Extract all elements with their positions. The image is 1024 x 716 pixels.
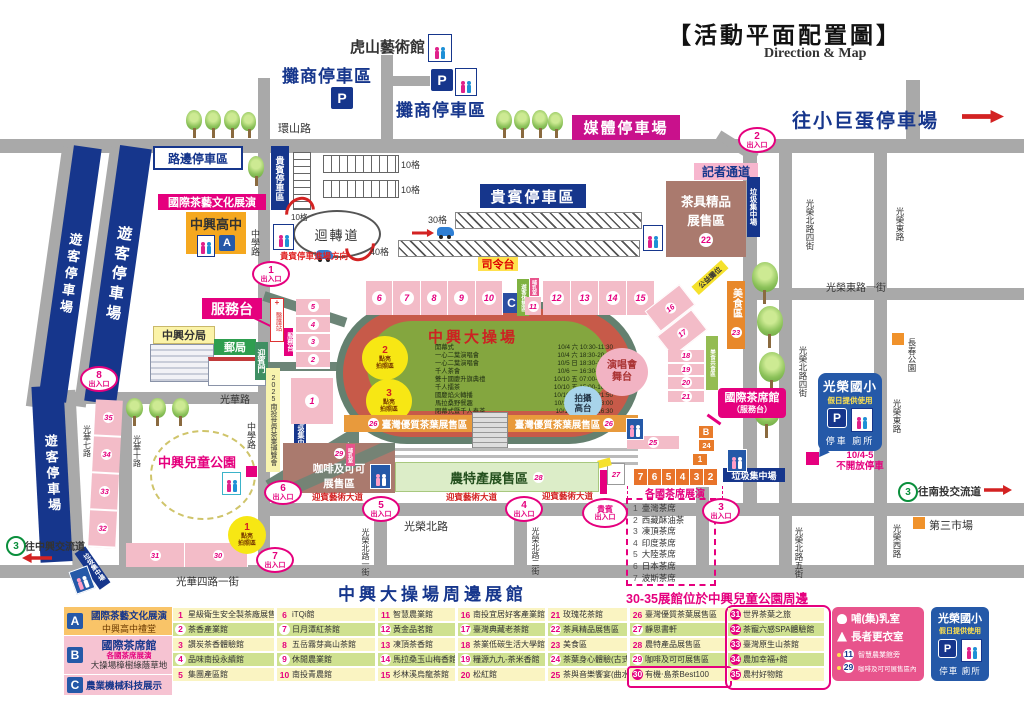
tea-seat-row: 1臺灣茶席 — [633, 503, 709, 515]
legend-item: 10南投青農館 — [277, 668, 375, 681]
legend-b-badge: B — [67, 647, 83, 663]
legend-item: 7日月潭紅茶館 — [277, 623, 375, 636]
booth-cell: 13 — [571, 281, 599, 315]
booth-cell: 7 — [393, 281, 420, 315]
booth-cell: 14 — [599, 281, 627, 315]
booth-cell: 12 — [543, 281, 571, 315]
legend-a-badge: A — [67, 613, 83, 629]
police-label: 中興分局 — [153, 326, 215, 344]
avenue-label: 迎賓藝術大道 — [446, 491, 497, 503]
booth-cell: 4 — [676, 469, 690, 485]
parking-hatch — [398, 240, 640, 257]
legend-item: 9休閒農業館 — [277, 653, 375, 666]
tree-icon — [757, 306, 783, 348]
booth-col-35-32: 35343332 — [88, 399, 123, 548]
vip-parking-box: 貴賓停車區 — [480, 184, 586, 208]
legend-item: 15杉林溪烏龍茶館 — [378, 668, 455, 681]
vip-parking-tag: 貴賓停車區 — [271, 146, 289, 210]
gn5-road-label: 光榮北路五街 — [793, 516, 805, 588]
tree-icon — [548, 112, 563, 138]
info-box: 哺(集)乳室 長者更衣室 11 智慧農業館旁 29 咖啡及可可展售區內 — [832, 607, 924, 681]
legend-item: 24茶葉身心體驗(古式奶茶) — [548, 653, 627, 666]
legend-col-3: 11智慧農業館12黃金品茗館13凍頂茶香館14馬拉桑玉山梅香館15杉林溪烏龍茶館 — [378, 608, 455, 683]
booth-cell: 2 — [296, 352, 330, 370]
agri-products-strip: 農特產展售區28 — [395, 462, 599, 492]
tea-seat-row: 3凍頂茶席 — [633, 526, 709, 538]
booth-cell: 5 — [662, 469, 676, 485]
tree-icon — [149, 398, 166, 426]
booth-cell: 33 — [90, 473, 119, 511]
tea-seat-row: 6日本茶席 — [633, 561, 709, 573]
booth-cell: 2 — [704, 469, 718, 485]
legend-item: 31世界茶葉之旅 — [728, 608, 824, 621]
booth-cell: 9 — [448, 281, 475, 315]
legend-item: 14馬拉桑玉山梅香館 — [378, 653, 455, 666]
market-label: 第三市場 — [929, 517, 973, 533]
tea-seat-row: 7波斯茶席 — [633, 573, 709, 585]
gate-3-badge: 3出入口 — [702, 498, 740, 524]
toilet-icon — [961, 639, 982, 662]
vendor-parking-1-label: 攤商停車區 — [282, 62, 372, 87]
booth-cell: 4 — [296, 317, 330, 335]
guangrong-school-callout: 光榮國小 假日提供使用 P 停車 廁所 — [818, 373, 882, 451]
police-building — [150, 344, 214, 382]
road-ge1 — [750, 288, 1024, 300]
small-tag — [600, 470, 607, 494]
legend-item: 28農特產品展售區 — [630, 638, 726, 651]
page-subtitle: Direction & Map — [764, 46, 866, 62]
nursing-tag: 哺乳室 — [530, 278, 539, 296]
legend-item: 3讚炭茶香體驗館 — [173, 638, 274, 651]
gate-5-badge: 5出入口 — [362, 496, 400, 522]
gate-8-badge: 8出入口 — [80, 366, 118, 392]
legend-b-block: B 國際茶席館 各國茶席展演 大操場樟樹綠蔭草地 — [64, 636, 172, 674]
toilet-icon — [370, 464, 391, 489]
to-nantou-arrow-icon — [984, 485, 1012, 495]
gn1-road-label: 光榮北路一街 — [360, 521, 371, 583]
children-park-label: 中興兒童公園 — [158, 452, 236, 471]
road-hushan — [381, 55, 393, 141]
booth-cell: 31 — [126, 543, 185, 567]
legend-item: 6iTQi館 — [277, 608, 375, 621]
command-stage-label: 司令台 — [478, 257, 518, 271]
booth-1: 1 — [291, 378, 333, 424]
booth-cell: 7 — [634, 469, 648, 485]
parking-icon: P — [330, 86, 354, 110]
legend-c-badge: C — [67, 677, 83, 693]
booth-cell: 18 — [668, 350, 704, 364]
car-icon — [437, 227, 454, 236]
changchun-park-icon — [892, 333, 904, 345]
vendor-parking-2-label: 攤商停車區 — [396, 96, 486, 121]
booth-row-12-15: 12131415 — [543, 281, 655, 315]
legend-item: 2茶香產業館 — [173, 623, 274, 636]
concert-stage: 演唱會舞台 — [596, 348, 648, 396]
parking-grid — [323, 155, 399, 173]
legend-item: 5集團產區館 — [173, 668, 274, 681]
food-area-strip: 美食區 23 — [727, 281, 745, 349]
legend-col-4: 16南投宜居好客產業館17臺灣典藏老茶館18茶業低碳生活大學館19糧源九九-茶米… — [458, 608, 545, 683]
booth-b: B — [699, 426, 713, 438]
to-nantou-label: 往南投交流道 — [918, 484, 981, 499]
legend-item: 27靜思書軒 — [630, 623, 726, 636]
tree-icon — [514, 110, 530, 138]
legend-item: 19糧源九九-茶米香館 — [458, 653, 545, 666]
parking-icon: P — [430, 68, 454, 92]
legend-col-5: 21玫瑰花茶館22茶具精品展售區23美食區24茶葉身心體驗(古式奶茶)25茶與音… — [548, 608, 627, 683]
parking-icon: P — [938, 639, 957, 658]
schedule-row: 一心二葉演唱會10/5 日 18:30-20:00 — [435, 360, 613, 368]
parking-hatch — [455, 212, 642, 229]
road-gn2 — [514, 516, 527, 568]
changchun-park-label: 長春公園 — [906, 322, 918, 388]
teaware-zone: 茶具精品 展售區 22 — [666, 181, 746, 257]
gate-4-badge: 4出入口 — [505, 496, 543, 522]
elder-icon — [837, 632, 847, 642]
legend-item: 21玫瑰花茶館 — [548, 608, 627, 621]
grid-count: 10格 — [401, 158, 420, 171]
zhongxue-road-label: 中學路 — [250, 220, 261, 264]
toilet-icon — [428, 34, 452, 62]
grnorth-road-label: 光榮北路 — [404, 518, 448, 534]
legend-item: 25茶與音樂饗宴(曲水流觴) — [548, 668, 627, 681]
toilet-icon — [197, 235, 215, 257]
legend-30-border — [627, 666, 732, 688]
huanshan-road-label: 環山路 — [278, 120, 311, 136]
gw-road-label: 光榮西路 — [891, 518, 903, 564]
trash-area-tag: 垃圾集中場 — [747, 177, 760, 237]
toilet-icon — [273, 224, 294, 250]
avenue-label: 迎賓藝術大道 — [312, 491, 363, 503]
booth-cell: 20 — [668, 377, 704, 391]
page-title: 【活動平面配置圖】 — [668, 16, 902, 50]
gate-1-badge: 1出入口 — [252, 261, 290, 287]
legend-item: 13凍頂茶香館 — [378, 638, 455, 651]
toilet-icon — [851, 408, 873, 432]
service-small-tag: 服務台 — [284, 328, 293, 356]
tree-icon — [205, 110, 221, 138]
school-legend-box: 光榮國小 假日提供使用 P 停車 廁所 — [931, 607, 989, 681]
guanghua-road-label: 光華路 — [220, 391, 250, 406]
hall-a-badge: A — [219, 235, 235, 251]
legend-item: 23美食區 — [548, 638, 627, 651]
tree-icon — [224, 110, 240, 138]
guanghua7-road-label: 光華七路 — [82, 416, 92, 466]
baby-icon — [837, 614, 847, 624]
legend-item: 16南投宜居好客產業館 — [458, 608, 545, 621]
intl-tea-culture-label: 國際茶藝文化展演 — [158, 194, 266, 210]
tea-seat-row: 5大陸茶席 — [633, 549, 709, 561]
road-zhongxue — [258, 78, 270, 576]
guanghua10-road-label: 光華十路 — [132, 424, 142, 478]
grid-count: 40格 — [370, 245, 389, 258]
highway-3-shield: 3 — [898, 482, 918, 502]
zhongxing-high-school: 中興高中 A — [186, 212, 246, 254]
roadside-parking-label: 路邊停車區 — [153, 146, 243, 170]
booth-cell: 35 — [94, 399, 123, 437]
ge-road-label: 光榮東路 — [891, 388, 903, 444]
tree-icon — [126, 398, 143, 426]
booth-24: 24 — [699, 440, 714, 451]
tea-seat-row: 2西藏酥油茶 — [633, 515, 709, 527]
post-office-label: 郵局 — [214, 339, 256, 355]
booth-cell: 32 — [88, 510, 117, 548]
legend-item: 11智慧農業館 — [378, 608, 455, 621]
toilet-icon — [643, 225, 663, 251]
tree-icon — [496, 110, 512, 138]
school-name: 中興高中 — [186, 214, 246, 233]
schedule-row: 開幕式10/4 六 10:30-11:30 — [435, 344, 613, 352]
grid-count: 30格 — [428, 213, 447, 226]
legend-item: 35農村好物館 — [728, 668, 824, 681]
photo-spot-2: 2點亮拍照區 — [362, 336, 408, 380]
booth-cell: 34 — [92, 436, 121, 474]
media-parking-label: 媒體停車場 — [572, 115, 680, 140]
avenue-label: 迎賓藝術大道 — [542, 490, 593, 502]
hushan-gallery-label: 虎山藝術館 — [350, 36, 425, 57]
booth-11: 11 — [525, 297, 541, 315]
legend-item: 34農加幸福+館 — [728, 653, 824, 666]
vip-direction-label: 貴賓停車進場方向 — [280, 250, 348, 262]
ge1-road-label: 光榮東路一街 — [826, 279, 886, 294]
legend-item: 18茶業低碳生活大學館 — [458, 638, 545, 651]
schedule-row: 一心二葉演唱會10/4 六 18:30-20:00 — [435, 352, 613, 360]
gn4-road-label: 光榮北路四街 — [797, 332, 809, 410]
schedule-row: 雙十國慶升旗典禮10/10 五 07:00-08:00 — [435, 376, 613, 384]
schedule-row: 千人茶會10/6 一 16:30-17:30 — [435, 368, 613, 376]
booth-col-5-2: 5432 — [296, 299, 330, 369]
tea-seat-row: 4印度茶席 — [633, 538, 709, 550]
to-dome-label: 往小巨蛋停車場 — [792, 106, 939, 133]
legend-col-1: 1星級衛生安全製茶廠展售館2茶香產業館3讚炭茶香體驗館4品味南投永續館5集團產區… — [173, 608, 274, 683]
charity-booth-tag: 公益攤位 — [691, 260, 728, 295]
around-title: 中興大操場周邊展館 — [338, 580, 527, 605]
event-map: 【活動平面配置圖】 Direction & Map 往小巨蛋停車場 虎山藝術館 … — [0, 0, 1024, 716]
legend-c-block: C 農業機械科技展示 — [64, 675, 172, 695]
legend-col-2: 6iTQi館7日月潭紅茶館8五岳霧芽高山茶館9休閒農業館10南投青農館 — [277, 608, 375, 683]
tree-icon — [248, 156, 264, 186]
gate-7-badge: 7出入口 — [256, 547, 294, 573]
nursing-tag: 哺乳室 — [346, 444, 355, 466]
legend-col-7: 31世界茶葉之旅32茶寵六感SPA體驗館33臺灣原生山茶館34農加幸福+館35農… — [728, 608, 824, 683]
to-dome-arrow-icon — [962, 110, 1004, 123]
direction-arrow-icon — [412, 229, 434, 237]
legend-item: 8五岳霧芽高山茶館 — [277, 638, 375, 651]
food-share-strip: 美食共食區 — [706, 336, 718, 390]
toilet-icon — [222, 472, 241, 495]
booth-cell: 5 — [296, 299, 330, 317]
booth-col-18-21: 18192021 — [668, 350, 704, 404]
gate-2-badge: 2出入口 — [738, 127, 776, 153]
legend-item: 1星級衛生安全製茶廠展售館 — [173, 608, 274, 621]
ge-road-label: 光榮東路 — [894, 196, 906, 252]
tree-icon — [752, 262, 778, 304]
expo-strip: 2025南投世界茶業博覽會 — [266, 368, 280, 472]
to-zhongxing-label: 往中興交流道 — [25, 538, 85, 553]
tree-icon — [241, 112, 256, 138]
service-desk-label: 服務台 — [202, 298, 262, 319]
legend-item: 29咖啡及可可展售區 — [630, 653, 726, 666]
road-gn1 — [374, 516, 387, 568]
road-connector — [392, 76, 434, 86]
toilet-icon — [626, 418, 644, 440]
booth-row-6-10: 678910 — [366, 281, 503, 315]
parking-grid — [323, 180, 399, 198]
tree-icon — [186, 110, 202, 138]
legend-item: 32茶寵六感SPA體驗館 — [728, 623, 824, 636]
legend-item: 17臺灣典藏老茶館 — [458, 623, 545, 636]
booth-cell: 6 — [648, 469, 662, 485]
booth-cell: 21 — [668, 391, 704, 405]
booth-cell: 10 — [476, 281, 503, 315]
tree-icon — [172, 398, 189, 426]
booth-27: 27 — [607, 463, 625, 485]
booth-row-7-2: 765432 — [634, 469, 718, 485]
red-cross-icon: + — [271, 299, 283, 307]
tree-icon — [532, 110, 548, 138]
legend-item: 20松紅館 — [458, 668, 545, 681]
photo-spot-1: 1點亮拍照區 — [228, 516, 266, 554]
vip-gate-badge: 貴賓出入口 — [582, 498, 628, 528]
parking-icon: P — [827, 408, 847, 428]
gate-6-badge: 6出入口 — [264, 480, 302, 505]
stage-marker — [246, 466, 257, 477]
legend-item: 4品味南投永續館 — [173, 653, 274, 666]
medic-station: + 醫護站 — [270, 298, 284, 342]
legend-a-block: A 國際茶藝文化展演 中興高中禮堂 — [64, 607, 172, 635]
no-parking-marker — [806, 452, 819, 465]
legend-item: 12黃金品茗館 — [378, 623, 455, 636]
legend-item: 33臺灣原生山茶館 — [728, 638, 824, 651]
no-parking-note: 10/4-5不開放停車 — [824, 450, 896, 472]
gn2-road-label: 光榮北路二街 — [530, 520, 541, 582]
guanghua41-road-label: 光華四路一街 — [176, 574, 239, 589]
toilet-icon — [455, 68, 477, 96]
toilet-icon — [727, 449, 747, 472]
legend-item: 22茶具精品展售區 — [548, 623, 627, 636]
legend-item: 26臺灣優質茶葉展售區 — [630, 608, 726, 621]
booth-1-south: 1 — [693, 454, 707, 465]
market-icon — [913, 517, 925, 529]
grid-count: 10格 — [401, 183, 420, 196]
booth-cell: 6 — [366, 281, 393, 315]
highway-3-shield: 3 — [6, 536, 26, 556]
booth-cell: 19 — [668, 364, 704, 378]
booth-cell: 3 — [296, 334, 330, 352]
intl-tea-hall-label: 國際茶席館（服務台） — [718, 388, 786, 418]
gn4-road-label: 光榮北路四街 — [804, 188, 816, 260]
booth-22-number: 22 — [699, 233, 713, 247]
booth-cell: 8 — [421, 281, 448, 315]
booth-cell: 3 — [690, 469, 704, 485]
